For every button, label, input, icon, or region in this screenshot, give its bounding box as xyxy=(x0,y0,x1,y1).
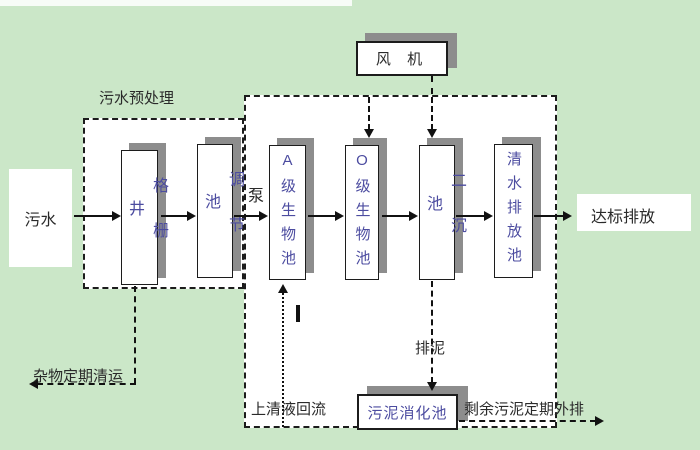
fan-label: 风 机 xyxy=(376,48,428,69)
flow-arrowhead xyxy=(484,211,493,221)
node-effluent: 达标排放 xyxy=(577,194,691,231)
flow-arrowhead xyxy=(259,211,268,221)
effluent-label: 达标排放 xyxy=(591,203,655,227)
air-arrowhead-obio xyxy=(364,129,374,138)
node-grid-well: 格栅井 xyxy=(121,150,158,285)
flow-arrowhead xyxy=(187,211,196,221)
secondary-settling-label: 二沉池 xyxy=(420,146,468,279)
influent-label: 污水 xyxy=(24,206,56,230)
flow-line-influent-gridwell xyxy=(74,215,113,217)
node-sludge-digestion-tank: 污泥消化池 xyxy=(357,394,458,430)
grid-well-label: 格栅井 xyxy=(122,151,170,284)
flow-line-gridwell-regulating xyxy=(161,215,188,217)
debris-line-vertical xyxy=(134,286,136,384)
pretreatment-title: 污水预处理 xyxy=(99,87,174,108)
pump-label: 泵 xyxy=(248,182,264,206)
node-fan: 风 机 xyxy=(356,41,448,76)
tick-mark xyxy=(296,305,300,322)
flow-arrowhead xyxy=(563,211,572,221)
supernatant-return-label: 上清液回流 xyxy=(251,398,326,419)
clear-water-label: 清水排放池 xyxy=(503,145,524,271)
o-bio-tank-label: O级生物池 xyxy=(352,146,373,274)
node-influent: 污水 xyxy=(9,169,72,267)
flow-line-obio-secondary xyxy=(382,215,410,217)
flow-arrowhead xyxy=(409,211,418,221)
air-arrowhead-secondary xyxy=(427,129,437,138)
flow-line-secondary-clearwater xyxy=(456,215,485,217)
debris-removal-label: 杂物定期清运 xyxy=(33,365,123,386)
excess-sludge-arrowhead xyxy=(595,416,604,426)
node-clear-water-tank: 清水排放池 xyxy=(494,144,533,278)
regulating-tank-label: 调节池 xyxy=(198,145,246,277)
flow-line-abio-obio xyxy=(308,215,336,217)
node-secondary-settling-tank: 二沉池 xyxy=(419,145,455,280)
flow-arrowhead xyxy=(335,211,344,221)
sludge-discharge-label: 排泥 xyxy=(415,337,445,358)
page-top-highlight xyxy=(0,0,352,6)
supernatant-arrowhead xyxy=(278,284,288,293)
flow-arrowhead xyxy=(112,211,121,221)
node-regulating-tank: 调节池 xyxy=(197,144,233,278)
digestion-tank-label: 污泥消化池 xyxy=(367,402,447,423)
node-a-bio-tank: A级生物池 xyxy=(269,145,306,280)
excess-sludge-line xyxy=(459,420,596,422)
a-bio-tank-label: A级生物池 xyxy=(277,146,298,274)
air-line-to-obio xyxy=(368,97,370,130)
node-o-bio-tank: O级生物池 xyxy=(345,145,379,280)
sludge-arrowhead xyxy=(427,382,437,391)
excess-sludge-label: 剩余污泥定期外排 xyxy=(464,398,584,419)
diagram-canvas: 污水预处理 污水 达标排放 风 机 格栅井 调节池 A级生物池 O级生物池 二沉… xyxy=(0,0,700,450)
air-line-to-secondary xyxy=(431,97,433,130)
flow-line-clearwater-effluent xyxy=(534,215,564,217)
sludge-line xyxy=(431,281,433,383)
fan-stem-line xyxy=(431,76,433,94)
flow-line-regulating-abio xyxy=(234,215,260,217)
